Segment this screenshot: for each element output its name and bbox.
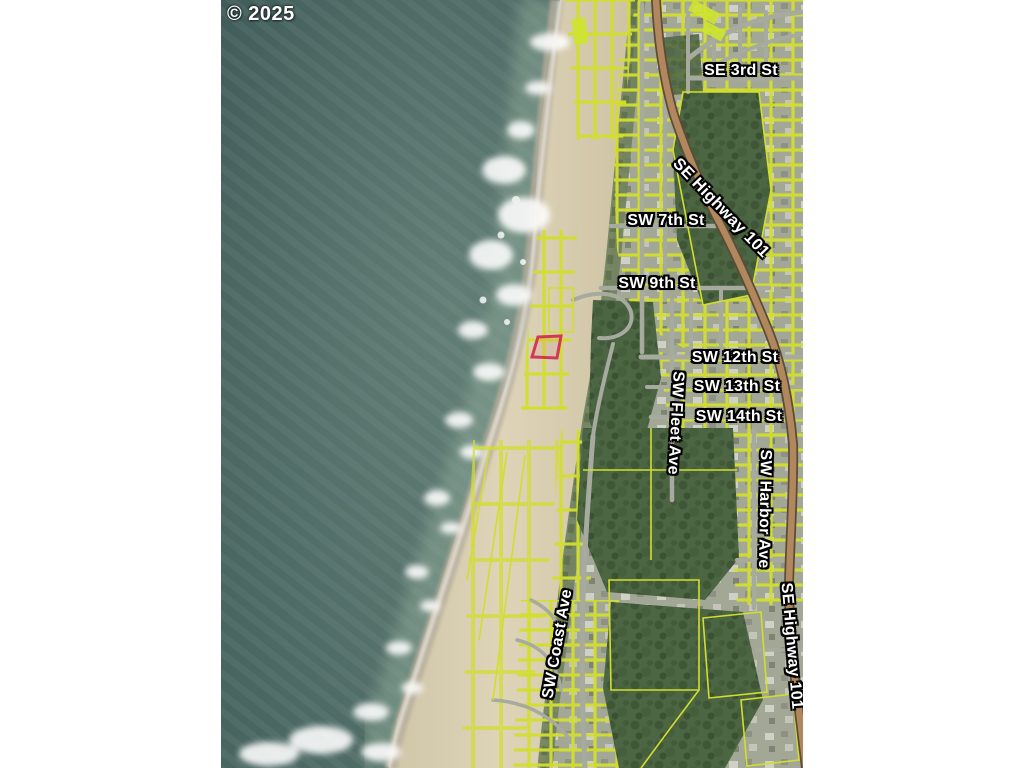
listing-photo-canvas: © 2025 SE 3rd St SE Highway 101 SW 7th S…: [0, 0, 1024, 768]
copyright-watermark: © 2025: [227, 4, 295, 24]
street-label-sw-7th-st: SW 7th St: [627, 213, 704, 229]
street-label-sw-12th-st: SW 12th St: [692, 350, 779, 366]
street-label-sw-harbor-ave: SW Harbor Ave: [755, 449, 773, 568]
satellite-map-photo[interactable]: © 2025 SE 3rd St SE Highway 101 SW 7th S…: [221, 0, 803, 768]
street-label-sw-13th-st: SW 13th St: [694, 379, 781, 395]
street-label-sw-9th-st: SW 9th St: [618, 276, 695, 292]
street-label-se-3rd-st: SE 3rd St: [704, 63, 778, 79]
subject-parcel-highlight: [532, 336, 561, 358]
street-label-sw-14th-st: SW 14th St: [696, 409, 783, 425]
